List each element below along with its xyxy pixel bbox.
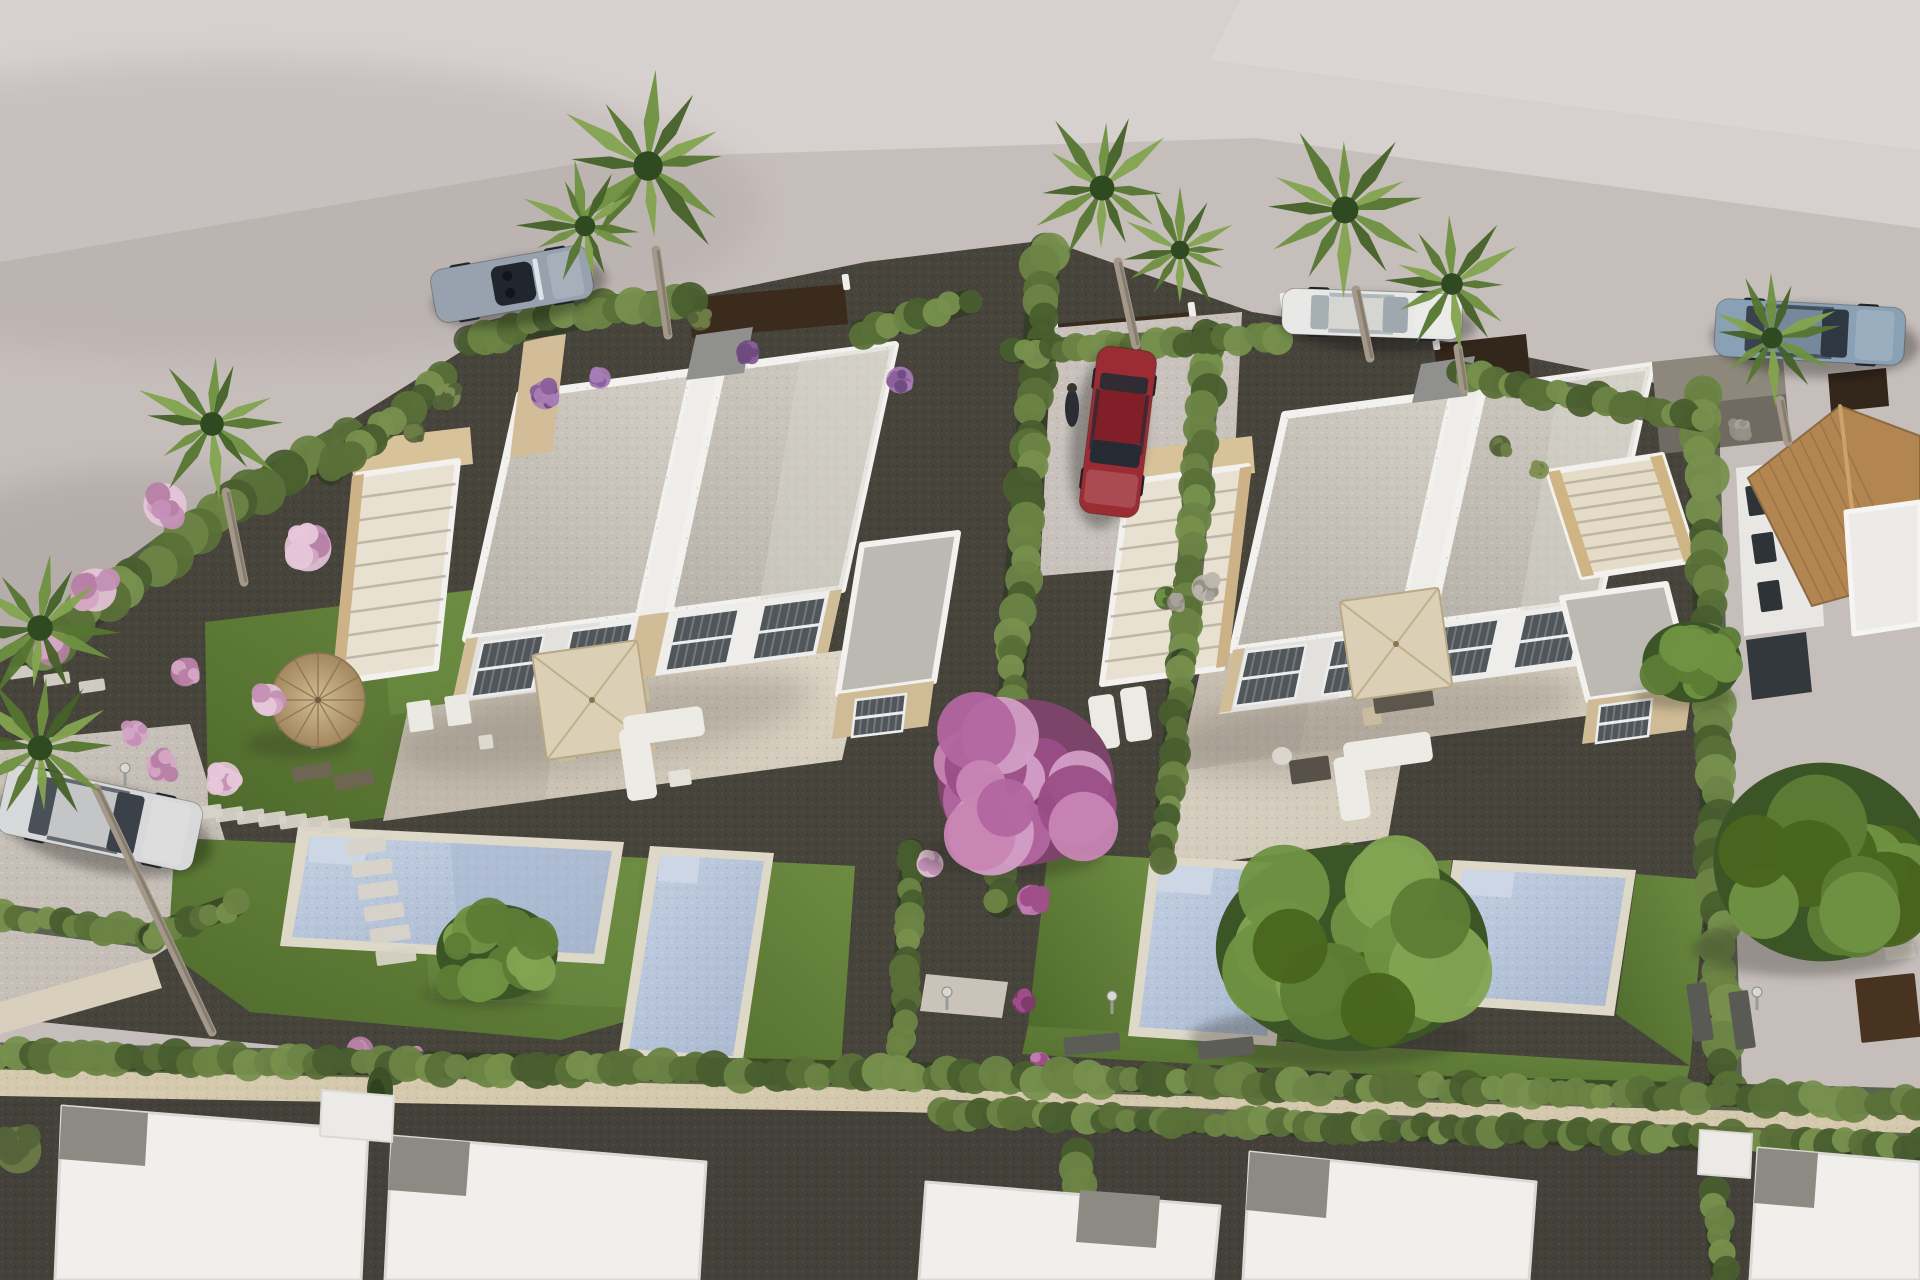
bougainvillea-patch-clump: [1012, 997, 1020, 1005]
bougainvillea-patch-clump: [1021, 996, 1035, 1010]
rooftop-courtyard: [1076, 1190, 1160, 1248]
neighbor-roof-slab: [1846, 502, 1920, 634]
shrub-green-clump: [443, 393, 452, 402]
car-red-hatchback-hood: [1083, 469, 1139, 509]
palm-tree-crown: [1090, 176, 1115, 201]
bougainvillea-tree-clump: [937, 692, 1016, 771]
garden-tree-clump: [1390, 878, 1470, 958]
bougainvillea-patch-clump: [1024, 892, 1036, 904]
garden-tree-clump: [457, 958, 501, 1002]
rooftop-courtyard: [1754, 1148, 1818, 1208]
shrub-green-clump: [687, 312, 699, 324]
neighbor-window: [1751, 532, 1777, 565]
person-figure-head: [1067, 383, 1077, 393]
street-lamp-head: [1752, 987, 1762, 997]
side-table: [478, 734, 494, 750]
garden-tree-clump: [1659, 626, 1701, 668]
flower-bush-pink-clump: [122, 727, 135, 740]
car-white-sedan-rear-window: [1310, 295, 1329, 330]
hedge-back-garden-blob: [318, 454, 345, 481]
garden-tree-clump: [1819, 872, 1900, 953]
flower-bush-pink-clump: [285, 541, 313, 569]
flower-bush-pink-clump: [158, 750, 173, 765]
garden-tree-clump: [1253, 909, 1328, 984]
window: [752, 597, 826, 660]
straw-parasol-pole: [315, 697, 321, 703]
pouf: [1272, 747, 1292, 765]
bougainvillea-tree-clump: [1049, 792, 1118, 861]
flower-bush-pink-clump: [251, 683, 270, 702]
patio-parasol: [1340, 588, 1453, 701]
palm-tree-crown: [1441, 273, 1463, 295]
palm-tree-crown: [27, 615, 53, 641]
car-blue-suv-hood: [1854, 309, 1895, 361]
car-white-sedan-windshield: [1382, 296, 1408, 333]
shrub-green-clump: [1541, 468, 1547, 474]
flower-bush-pink-clump: [188, 668, 200, 680]
pool-steps: [658, 855, 700, 884]
shrub-green-clump: [404, 424, 417, 437]
hedge-back-garden-blob: [959, 290, 983, 314]
palm-tree-crown: [575, 216, 595, 236]
flower-bush-purple-clump: [894, 380, 907, 393]
shrub-green-clump: [700, 318, 710, 328]
flower-bush-pink-clump: [207, 762, 226, 781]
palm-tree-crown: [1171, 241, 1190, 260]
flower-bush-purple-clump: [738, 353, 749, 364]
neighbor-window: [1757, 580, 1783, 613]
hedge-divider-blob: [1149, 847, 1177, 875]
car-silver-convertible-cockpit: [490, 260, 538, 307]
hedge-back-garden-blob: [937, 291, 961, 315]
garden-tree-clump: [515, 917, 557, 959]
garden-tree-clump: [1341, 973, 1415, 1047]
shrub-green-clump: [1501, 445, 1513, 457]
street-lamp-head: [942, 987, 952, 997]
wooden-pergola: [1855, 973, 1920, 1043]
window: [852, 694, 906, 737]
window: [665, 609, 739, 671]
garden-tree-clump: [471, 905, 507, 941]
hedge-divider-tall-blob: [983, 889, 1007, 913]
bougainvillea-patch: [1017, 885, 1050, 916]
flower-bush-pink-clump: [296, 523, 318, 545]
palm-tree-crown: [1761, 327, 1782, 348]
palm-tree-crown: [200, 412, 224, 436]
rooftop-courtyard: [388, 1136, 470, 1196]
car-red-hatchback-roof: [1091, 389, 1149, 445]
shrub-green: [403, 421, 425, 443]
flower-bush-purple-clump: [743, 344, 752, 353]
flower-bush-pink: [171, 658, 200, 687]
garden-tree-clump: [444, 932, 471, 959]
boulder-clump: [1735, 428, 1746, 439]
flower-bush-purple-clump: [545, 393, 559, 407]
flower-bush-purple-clump: [897, 370, 906, 379]
shrub-green-clump: [1531, 463, 1539, 471]
lounge-chair: [406, 699, 434, 732]
flower-bush-pink-clump: [138, 724, 148, 734]
boulder-clump: [1207, 574, 1219, 586]
hedge-front-row-blob: [1379, 1119, 1403, 1143]
boulder-clump: [1171, 598, 1178, 605]
flower-bush-purple-clump: [590, 371, 602, 383]
flower-bush-pink-clump: [151, 499, 171, 519]
boulder-clump: [1204, 591, 1215, 602]
rooftop-slab: [1698, 1130, 1752, 1178]
hedge-front-row-blob: [804, 1063, 831, 1090]
scene-svg: [0, 0, 1920, 1280]
rooftop-slab: [320, 1090, 394, 1142]
shrub-green-clump: [416, 435, 423, 442]
palm-tree-crown: [633, 151, 662, 180]
street-lamp-head: [120, 763, 130, 773]
bougainvillea-tree-clump: [977, 779, 1035, 837]
person-figure-body: [1065, 389, 1079, 427]
garden-tree-clump: [1718, 815, 1791, 888]
lounge-chair: [444, 693, 472, 726]
boulder-clump: [1194, 585, 1203, 594]
street-lamp-head: [1107, 991, 1117, 1001]
palm-tree-crown: [28, 736, 53, 761]
rooftop-courtyard: [59, 1106, 148, 1166]
hedge-back-fence-blob: [1691, 407, 1715, 431]
rooftop-courtyard: [1246, 1152, 1330, 1218]
window: [1596, 699, 1652, 743]
hedge-driveway-blob: [223, 888, 250, 915]
flower-bush-pink: [285, 523, 332, 572]
bougainvillea-patch-clump: [1031, 1052, 1041, 1062]
window: [1235, 645, 1306, 706]
palm-tree-crown: [1332, 197, 1359, 224]
ottoman: [668, 769, 692, 788]
flower-bush-pink-clump: [226, 772, 242, 788]
flower-bush-purple: [736, 340, 759, 364]
architectural-render: [0, 0, 1920, 1280]
flower-bush-pink-clump: [163, 767, 178, 782]
neighbor-dark-opening: [1746, 632, 1812, 700]
boulder-clump: [1739, 420, 1747, 428]
flower-bush-purple-clump: [540, 378, 557, 395]
